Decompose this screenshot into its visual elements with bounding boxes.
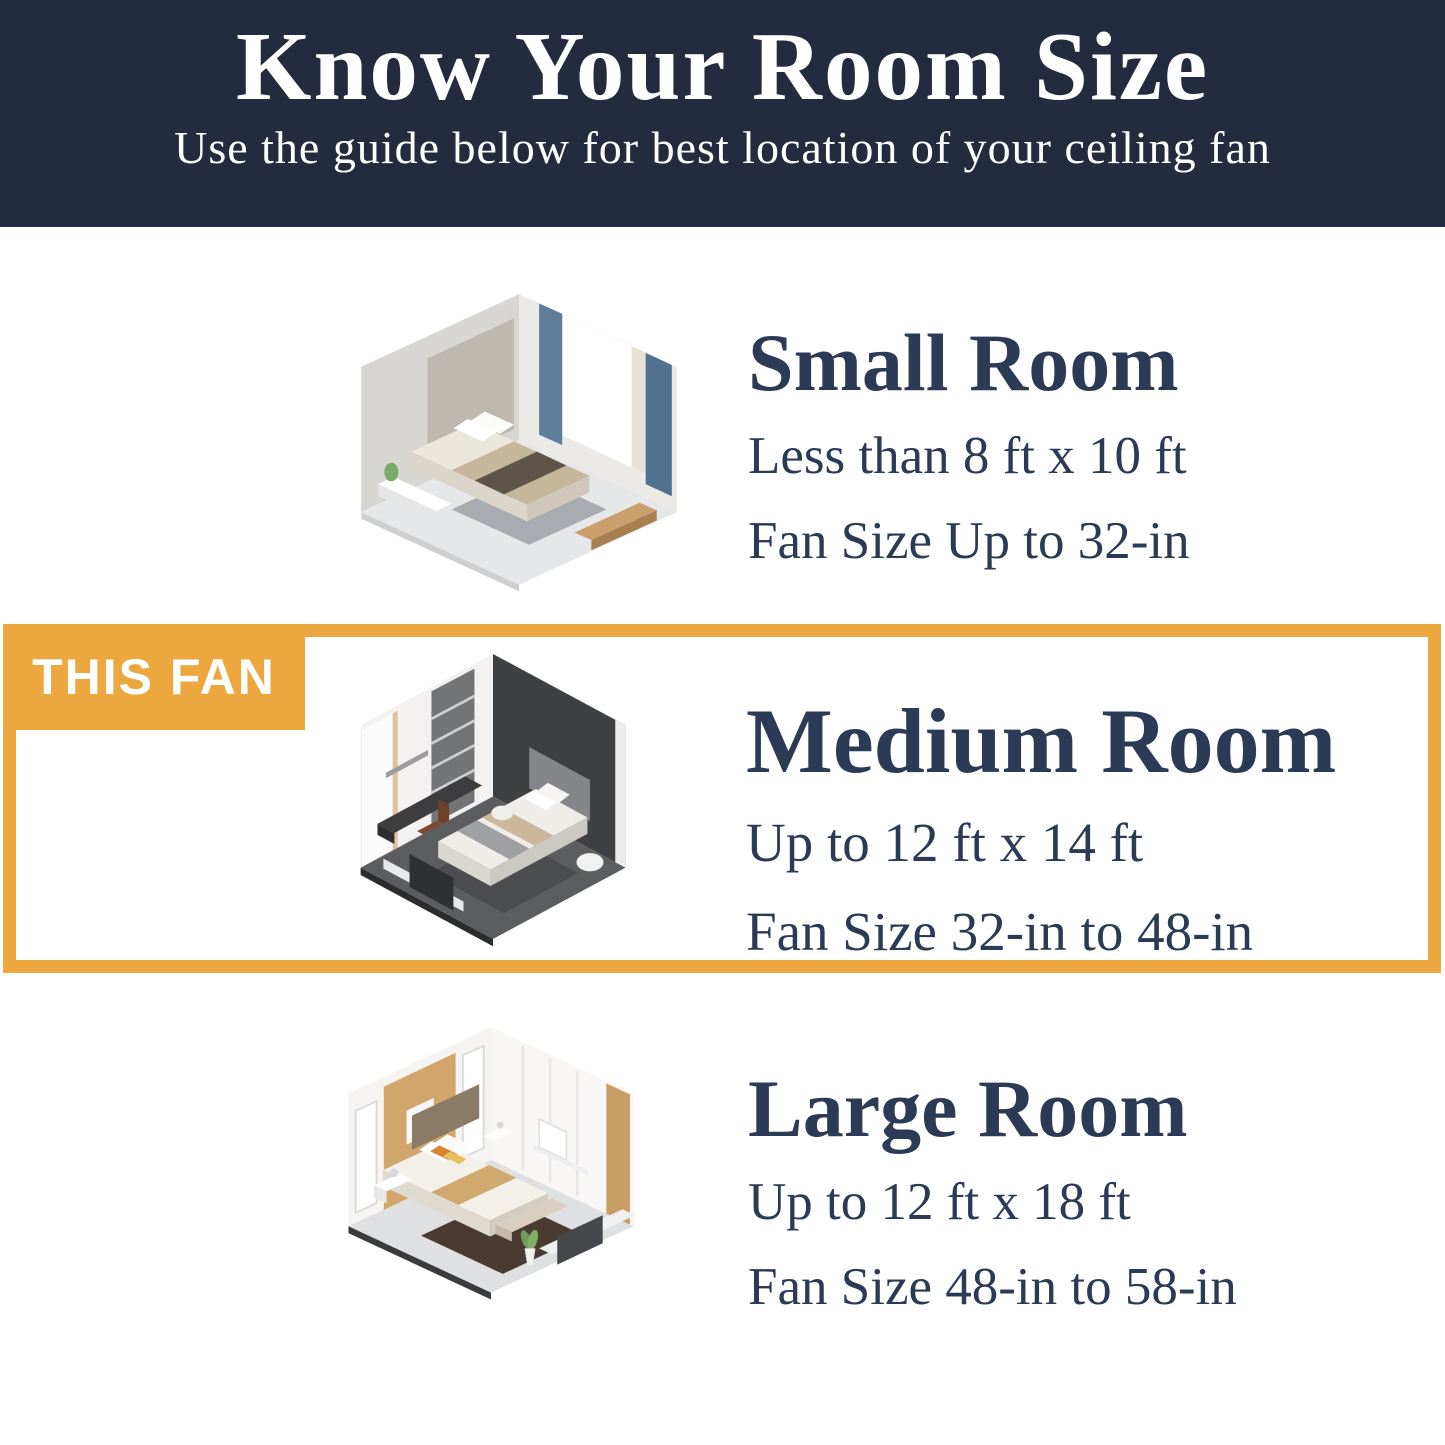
small-room-illustration xyxy=(333,283,705,595)
header-banner: Know Your Room Size Use the guide below … xyxy=(0,0,1445,227)
page-subtitle: Use the guide below for best location of… xyxy=(0,125,1445,171)
large-room-dimensions: Up to 12 ft x 18 ft xyxy=(748,1170,1237,1235)
wardrobe xyxy=(362,711,397,867)
pouf xyxy=(576,853,603,871)
section-small-room: Small Room Less than 8 ft x 10 ft Fan Si… xyxy=(0,227,1445,624)
medium-room-illustration xyxy=(337,643,649,949)
this-fan-badge-label: THIS FAN xyxy=(32,648,276,706)
large-room-illustration xyxy=(323,1017,659,1302)
medium-room-copy: Medium Room Up to 12 ft x 14 ft Fan Size… xyxy=(746,695,1336,965)
small-room-title: Small Room xyxy=(748,322,1190,404)
curtain-right xyxy=(646,353,672,496)
small-room-copy: Small Room Less than 8 ft x 10 ft Fan Si… xyxy=(748,322,1190,573)
this-fan-badge: THIS FAN xyxy=(3,624,305,730)
large-room-copy: Large Room Up to 12 ft x 18 ft Fan Size … xyxy=(748,1068,1237,1319)
pouf xyxy=(491,806,513,821)
small-room-isometric-image xyxy=(333,283,705,595)
door xyxy=(606,1083,630,1225)
room-size-infographic: Know Your Room Size Use the guide below … xyxy=(0,0,1445,1445)
plant xyxy=(384,463,398,482)
curtain-left xyxy=(539,303,562,445)
small-room-dimensions: Less than 8 ft x 10 ft xyxy=(748,424,1190,489)
medium-room-fan-size: Fan Size 32-in to 48-in xyxy=(746,898,1336,965)
sheer-curtain xyxy=(632,346,646,474)
accent-wall-sliver xyxy=(615,720,625,868)
small-room-fan-size: Fan Size Up to 32-in xyxy=(748,509,1190,574)
large-room-isometric-image xyxy=(323,1017,659,1302)
lamp xyxy=(389,1168,398,1177)
large-room-fan-size: Fan Size 48-in to 58-in xyxy=(748,1255,1237,1320)
section-medium-room-highlighted: THIS FAN xyxy=(3,624,1441,973)
lamp xyxy=(496,1122,503,1129)
medium-room-isometric-image xyxy=(337,643,649,949)
section-large-room: Large Room Up to 12 ft x 18 ft Fan Size … xyxy=(0,990,1445,1330)
large-room-title: Large Room xyxy=(748,1068,1237,1150)
medium-room-dimensions: Up to 12 ft x 14 ft xyxy=(746,809,1336,876)
page-title: Know Your Room Size xyxy=(0,0,1445,115)
medium-room-title: Medium Room xyxy=(746,695,1336,787)
window xyxy=(356,1101,377,1212)
